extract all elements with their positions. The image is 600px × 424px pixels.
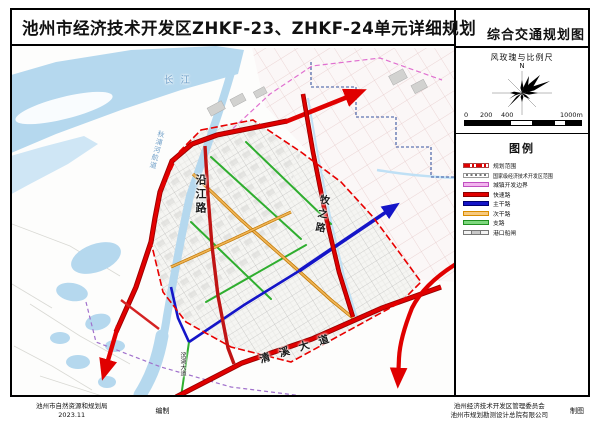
page-title: 池州市经济技术开发区ZHKF-23、ZHKF-24单元详细规划 [22, 15, 476, 39]
sheet-title: 综合交通规划图 [487, 24, 585, 43]
footer-right-role: 制图 [570, 406, 584, 416]
legend-swatch-expressway [463, 192, 489, 197]
footer: 池州市自然资源和规划局 2023.11 编制 池州经济技术开发区管理委员会 池州… [10, 399, 590, 423]
drawing-frame: 池州市经济技术开发区ZHKF-23、ZHKF-24单元详细规划 [10, 8, 590, 397]
planning-sheet: 池州市经济技术开发区ZHKF-23、ZHKF-24单元详细规划 [0, 0, 600, 424]
legend-item: 主干路 [456, 199, 588, 209]
footer-left-role: 编制 [156, 406, 170, 416]
legend-label: 主干路 [493, 199, 510, 208]
legend-swatch-arterial [463, 201, 489, 206]
title-bar: 池州市经济技术开发区ZHKF-23、ZHKF-24单元详细规划 [12, 10, 454, 46]
left-column: 池州市经济技术开发区ZHKF-23、ZHKF-24单元详细规划 [12, 10, 456, 395]
windrose-section: 风玫瑰与比例尺 N [456, 48, 588, 134]
right-org-2: 池州市规划勘测设计总院有限公司 [451, 411, 549, 420]
legend-section: 图例 规划范围 国家级经济技术开发区范围 城镇开发边界 快速路 [456, 134, 588, 395]
legend-swatch-lock-gate [463, 230, 489, 235]
legend-swatch-devzone-scope [463, 173, 489, 178]
left-org-name: 池州市自然资源和规划局 [36, 402, 108, 411]
scale-0: 0 [464, 111, 468, 119]
legend-item: 规划范围 [456, 161, 588, 171]
legend-item: 支路 [456, 218, 588, 228]
footer-right-orgs: 池州经济技术开发区管理委员会 池州市规划勘测设计总院有限公司 [451, 402, 549, 420]
legend-title: 图例 [456, 140, 588, 156]
legend-label: 城镇开发边界 [493, 180, 528, 189]
legend-item: 快速路 [456, 190, 588, 200]
legend-swatch-branch [463, 220, 489, 225]
map-canvas: 长江 秋浦河航道 沿江路 牧之路 清溪大道 滨湖大道 [12, 46, 454, 395]
legend-label: 次干路 [493, 209, 510, 218]
map-svg [12, 46, 454, 395]
scale-bar: 0 200 400 1000m [464, 111, 582, 127]
legend-swatch-secondary [463, 211, 489, 216]
sheet-title-cell: 综合交通规划图 [456, 10, 588, 48]
legend-item: 城镇开发边界 [456, 180, 588, 190]
legend-label: 国家级经济技术开发区范围 [493, 171, 553, 180]
footer-left-org: 池州市自然资源和规划局 2023.11 [36, 402, 108, 420]
sidebar: 综合交通规划图 风玫瑰与比例尺 N [456, 10, 588, 395]
scale-200: 200 [480, 111, 492, 119]
scale-1000: 1000m [560, 111, 583, 119]
legend-label: 规划范围 [493, 161, 516, 170]
legend-label: 支路 [493, 218, 505, 227]
scale-400: 400 [501, 111, 513, 119]
right-org-1: 池州经济技术开发区管理委员会 [451, 402, 549, 411]
scale-bar-segments [464, 120, 582, 126]
legend-item: 次干路 [456, 209, 588, 219]
left-org-date: 2023.11 [36, 411, 108, 420]
legend-swatch-urban-boundary [463, 182, 489, 187]
legend-swatch-planning-scope [463, 163, 489, 168]
legend-item: 港口船闸 [456, 228, 588, 238]
legend-label: 快速路 [493, 190, 510, 199]
legend-label: 港口船闸 [493, 228, 516, 237]
lakes [50, 236, 125, 388]
legend-item: 国家级经济技术开发区范围 [456, 171, 588, 181]
